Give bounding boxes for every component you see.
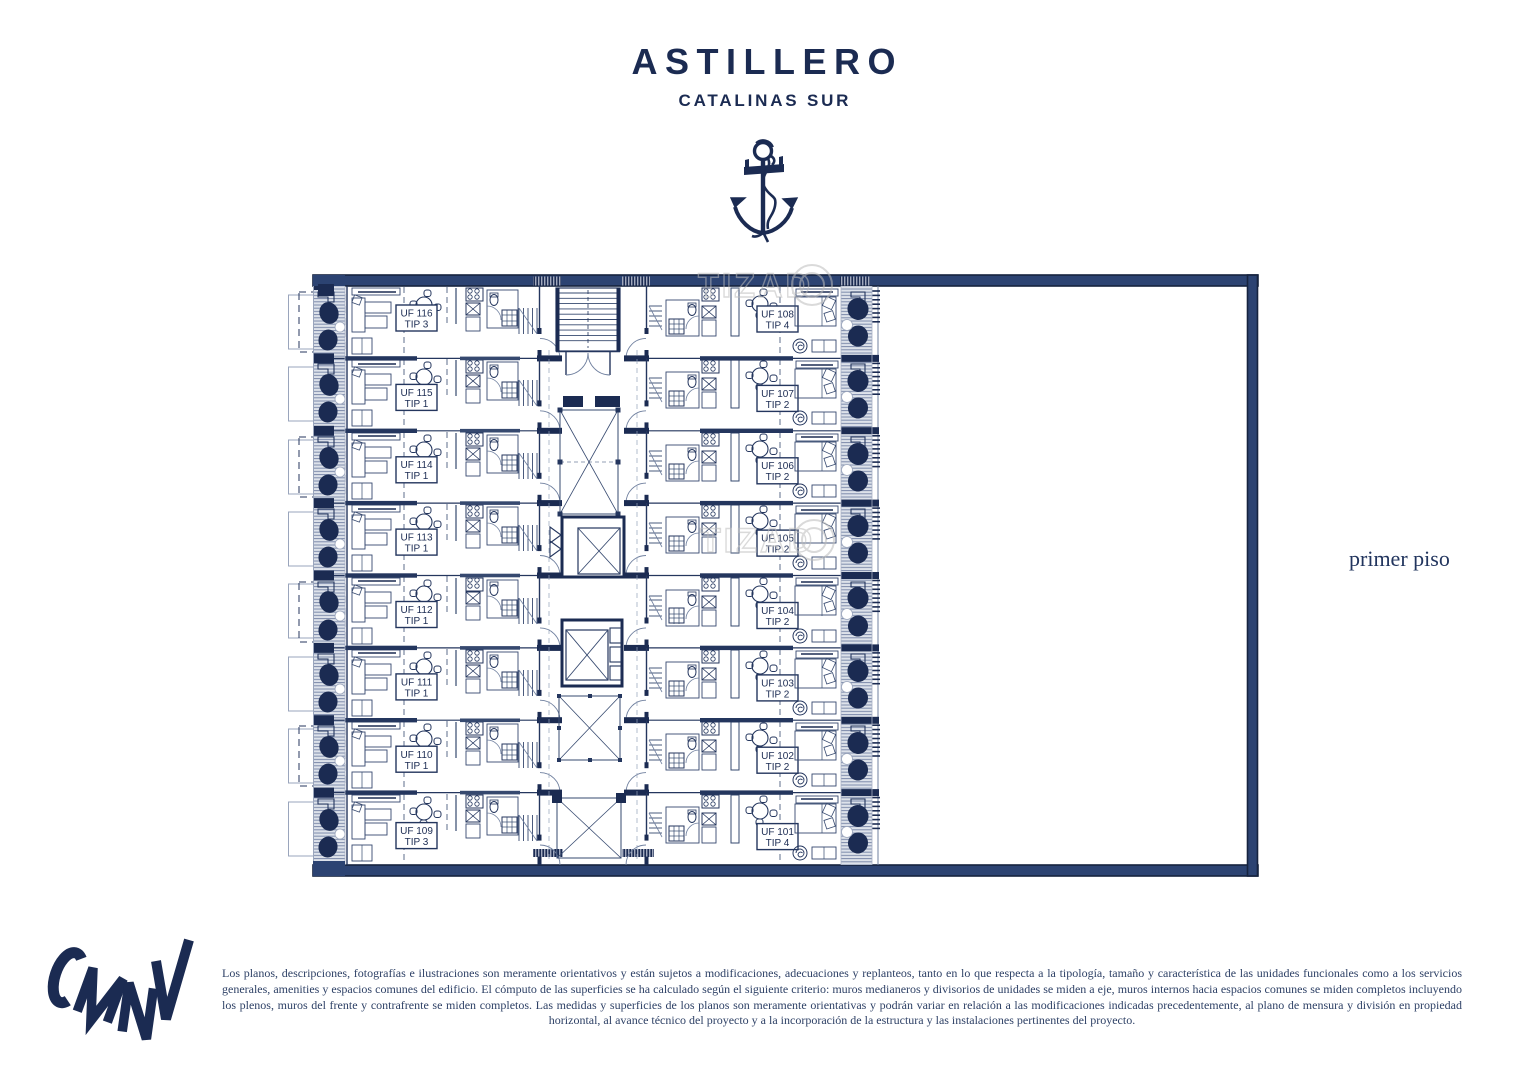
svg-text:TIP 3: TIP 3 xyxy=(405,320,429,331)
svg-text:TIP 1: TIP 1 xyxy=(405,471,429,482)
svg-text:UF 113: UF 113 xyxy=(400,533,432,544)
svg-text:TIP 4: TIP 4 xyxy=(766,838,790,849)
svg-text:UF 114: UF 114 xyxy=(400,460,432,471)
svg-text:UF 106: UF 106 xyxy=(761,461,794,472)
svg-text:UF 103: UF 103 xyxy=(761,678,794,689)
svg-text:UF 108: UF 108 xyxy=(761,310,794,321)
svg-text:UF 102: UF 102 xyxy=(761,751,794,762)
svg-text:UF 115: UF 115 xyxy=(400,388,432,399)
svg-text:UF 116: UF 116 xyxy=(400,309,432,320)
svg-text:TIP 4: TIP 4 xyxy=(766,321,790,332)
svg-text:UF 111: UF 111 xyxy=(401,677,433,688)
svg-text:UF 107: UF 107 xyxy=(761,389,794,400)
svg-text:UF 110: UF 110 xyxy=(400,750,432,761)
svg-text:UF 112: UF 112 xyxy=(400,605,432,616)
svg-text:TIP 3: TIP 3 xyxy=(405,837,429,848)
svg-text:TIP 2: TIP 2 xyxy=(766,472,790,483)
svg-text:TIP 2: TIP 2 xyxy=(766,689,790,700)
svg-text:TIP 2: TIP 2 xyxy=(766,617,790,628)
svg-text:UF 104: UF 104 xyxy=(761,606,794,617)
svg-text:TIP 1: TIP 1 xyxy=(405,399,429,410)
svg-text:TIP 2: TIP 2 xyxy=(766,400,790,411)
svg-text:TIP 1: TIP 1 xyxy=(405,616,429,627)
svg-text:TIP 1: TIP 1 xyxy=(405,688,429,699)
svg-text:UF 109: UF 109 xyxy=(400,826,433,837)
svg-text:TIP 1: TIP 1 xyxy=(405,544,429,555)
svg-text:TIP 2: TIP 2 xyxy=(766,762,790,773)
svg-text:UF 101: UF 101 xyxy=(761,827,794,838)
svg-text:TIP 1: TIP 1 xyxy=(405,761,429,772)
